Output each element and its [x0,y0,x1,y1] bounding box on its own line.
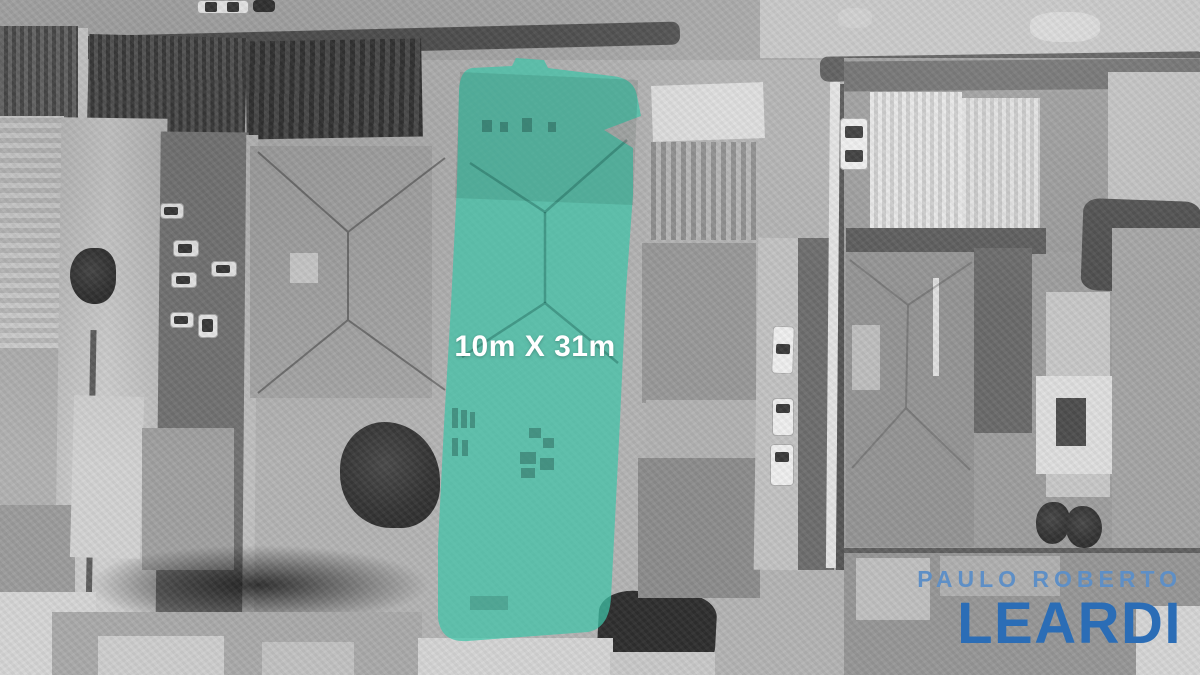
roof-block [0,348,58,513]
lot-dimension-label: 10m X 31m [425,330,645,364]
tree [1066,506,1102,548]
ground-area [638,458,760,598]
building [418,638,613,675]
roof-block [846,252,974,547]
doorway [1056,398,1086,446]
car [772,398,794,436]
car [771,326,795,375]
roof-block [1112,228,1200,563]
car [840,118,868,170]
tree [340,422,440,528]
car [197,0,249,14]
shadow [974,248,1032,433]
building [98,636,224,675]
street-blob [838,8,872,28]
car [171,272,197,288]
tree [70,248,116,304]
aerial-photo-canvas: 10m X 31m PAULO ROBERTO LEARDI [0,0,1200,675]
brand-logo: PAULO ROBERTO LEARDI [917,568,1182,653]
roof-block [642,243,756,403]
street-area [760,0,1200,58]
brand-logo-line1: PAULO ROBERTO [917,568,1182,591]
car [170,312,194,328]
car [173,240,199,257]
car [198,314,218,338]
car [160,203,184,219]
car [253,0,275,12]
brand-logo-line2: LEARDI [917,595,1182,653]
roof-ridge [933,278,939,376]
roof-patch [852,325,880,390]
roof-block [870,92,962,250]
ground-area [0,505,75,605]
roof-block [0,116,64,348]
roof-block [646,400,756,462]
car [770,444,794,486]
building [610,652,715,675]
roof-block [646,142,760,240]
roof-block [245,38,423,139]
roof-patch [290,253,318,283]
car [211,261,237,277]
street-blob [1030,12,1100,42]
roof-patch [651,82,765,142]
roof-block [250,146,432,398]
building [70,395,144,559]
building [262,642,354,675]
